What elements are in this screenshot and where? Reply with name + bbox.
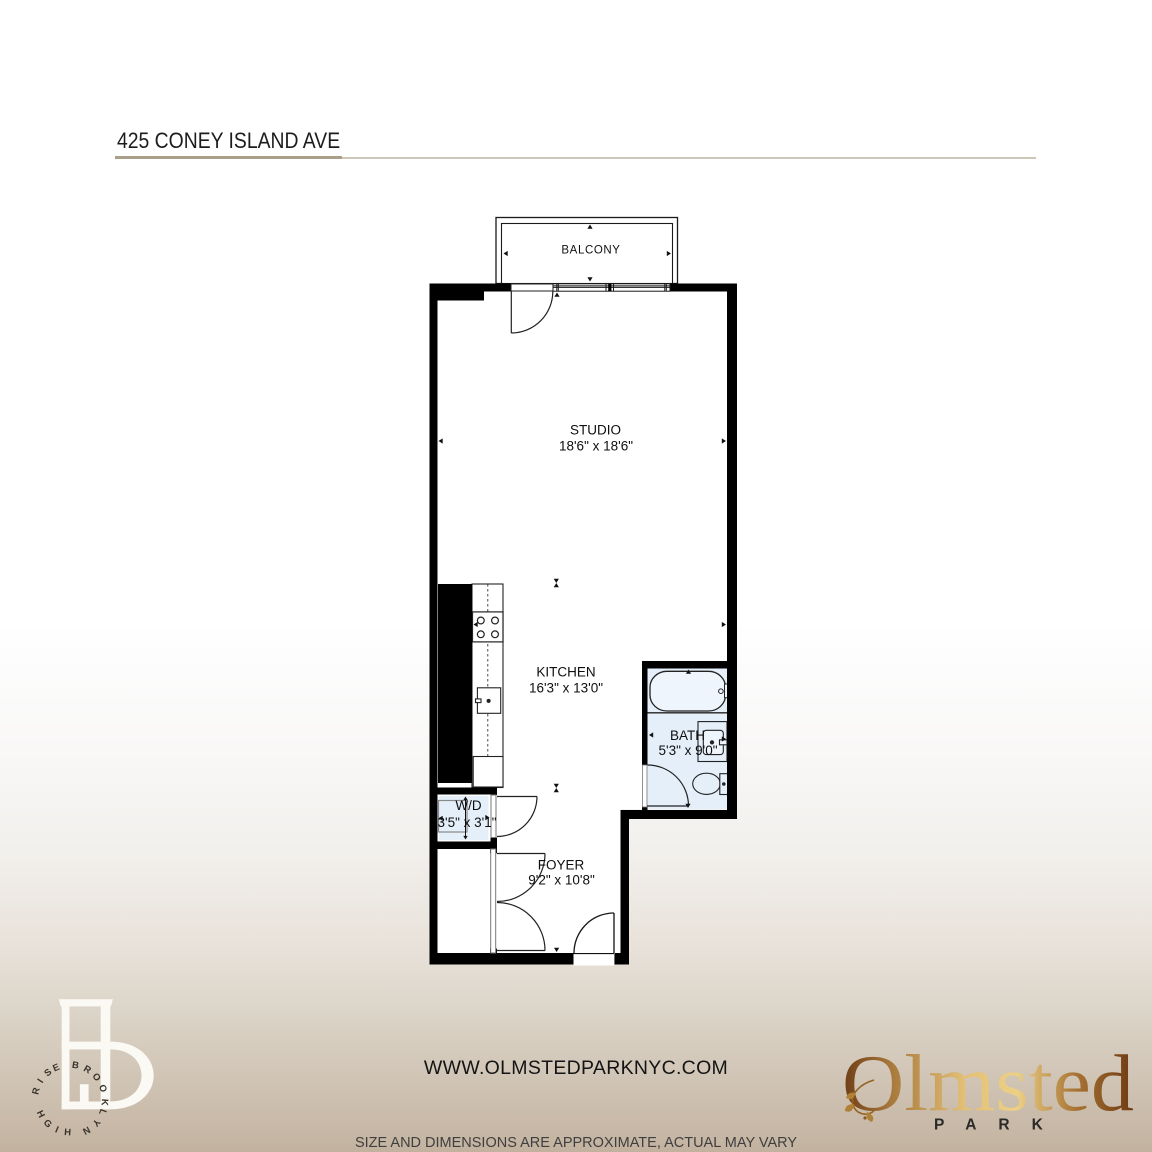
svg-text:H: H [34,1109,47,1120]
svg-text:Olmsted: Olmsted [842,1038,1134,1128]
svg-text:BALCONY: BALCONY [561,245,620,257]
svg-text:5'3" x 9'0": 5'3" x 9'0" [658,743,717,758]
svg-text:PARK: PARK [934,1117,1065,1134]
svg-text:K: K [99,1098,110,1106]
svg-text:16'3" x 13'0": 16'3" x 13'0" [529,681,603,696]
svg-text:KITCHEN: KITCHEN [536,665,595,680]
svg-text:W/D: W/D [455,798,481,813]
svg-text:BATH: BATH [670,728,705,743]
svg-text:I: I [53,1125,60,1136]
svg-text:R: R [30,1086,42,1095]
svg-text:9'2" x 10'8": 9'2" x 10'8" [528,873,595,888]
svg-text:3'5" x 3'1": 3'5" x 3'1" [437,815,496,830]
svg-text:FOYER: FOYER [538,858,585,873]
svg-text:Y: Y [89,1116,102,1128]
svg-text:G: G [41,1117,54,1130]
svg-text:18'6" x 18'6": 18'6" x 18'6" [559,439,633,454]
svg-text:STUDIO: STUDIO [570,423,621,438]
